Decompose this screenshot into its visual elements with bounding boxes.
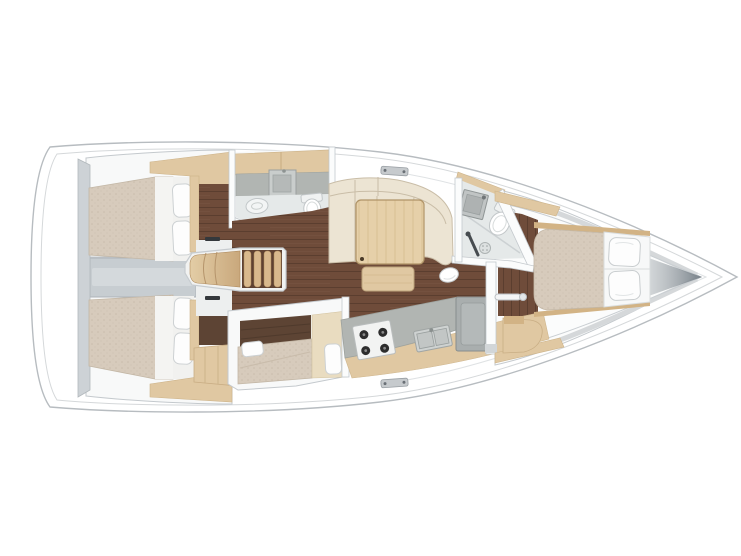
partition-cap: [485, 344, 497, 353]
chainplate-starboard: [381, 378, 408, 388]
engine-corridor-top: [92, 268, 194, 286]
chainplate-port: [381, 166, 408, 176]
berth-port-linen: [155, 177, 173, 261]
stair-tread: [264, 251, 271, 287]
pillow: [241, 341, 264, 357]
saloon-table: [356, 200, 424, 264]
transom-bulkhead: [78, 159, 90, 397]
fridge: [456, 297, 490, 351]
pillow: [608, 270, 640, 301]
pillow: [324, 344, 342, 375]
table-corner-mark: [360, 257, 364, 261]
stair-tread: [254, 251, 261, 287]
faucet-icon: [282, 169, 286, 173]
stove: [352, 320, 395, 360]
boat-floorplan-page: [0, 0, 741, 556]
washbasin-bowl: [273, 175, 291, 192]
bench: [362, 267, 414, 291]
shower-drain-icon: [480, 243, 491, 254]
head-washbasin: [458, 189, 488, 219]
pillow: [608, 237, 640, 267]
boat-floorplan-diagram: [0, 0, 741, 556]
forward-mattress: [534, 229, 604, 310]
berth-starboard-linen: [155, 296, 173, 379]
aft-head-wall-left: [229, 150, 235, 228]
vanity-shelf: [504, 316, 524, 324]
door-handle: [205, 296, 220, 300]
midship-cabin: [228, 297, 349, 390]
forward-head-wall-left: [455, 178, 462, 262]
stair-tread: [244, 251, 251, 287]
door-handle: [205, 237, 220, 241]
partition-wall: [486, 262, 496, 354]
grab-rail: [495, 294, 527, 301]
stair-tread: [274, 251, 281, 287]
